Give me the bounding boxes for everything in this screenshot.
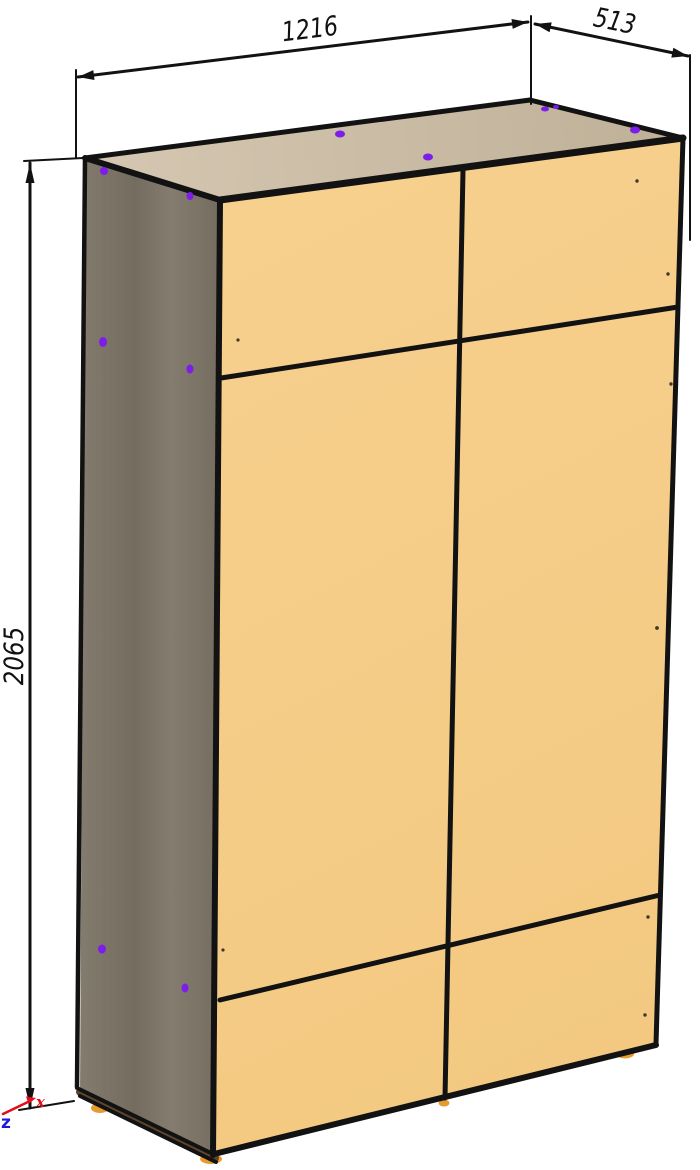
arrow-icon (535, 22, 552, 32)
arrow-icon (671, 48, 688, 58)
hardware-dot (99, 337, 107, 347)
arrow-icon (512, 19, 529, 29)
hardware-dot (98, 945, 106, 954)
speck (646, 915, 649, 918)
height-dimension: 2065 (0, 158, 83, 1110)
wardrobe-side-panel[interactable] (80, 158, 220, 1162)
arrow-icon (78, 70, 95, 80)
speck (655, 626, 659, 630)
cad-3d-viewport: 1216 513 2065 x z (0, 0, 700, 1170)
x-axis-label: x (35, 1093, 46, 1111)
wardrobe-body (80, 100, 683, 1164)
hardware-dot (187, 192, 194, 200)
width-dimension-label: 1216 (280, 10, 340, 48)
hardware-dot (335, 131, 345, 138)
z-axis-label: z (1, 1113, 11, 1133)
axis-indicator: x z (1, 1093, 46, 1133)
hardware-dot (541, 107, 549, 112)
hardware-dot (187, 365, 194, 374)
depth-dimension-label: 513 (591, 1, 639, 40)
speck (635, 179, 638, 182)
speck (236, 338, 239, 341)
speck (669, 382, 672, 385)
speck (221, 948, 224, 951)
arrow-icon (26, 163, 35, 183)
speck (643, 1013, 646, 1016)
hardware-dot (630, 127, 640, 134)
speck (666, 272, 669, 275)
extension-line (24, 158, 83, 161)
hardware-dot (553, 105, 559, 109)
hardware-dot (423, 154, 433, 161)
hardware-dot (182, 984, 189, 993)
wardrobe-drawing: 1216 513 2065 x z (0, 0, 700, 1170)
height-dimension-label: 2065 (0, 627, 29, 685)
hardware-dot (100, 167, 108, 175)
